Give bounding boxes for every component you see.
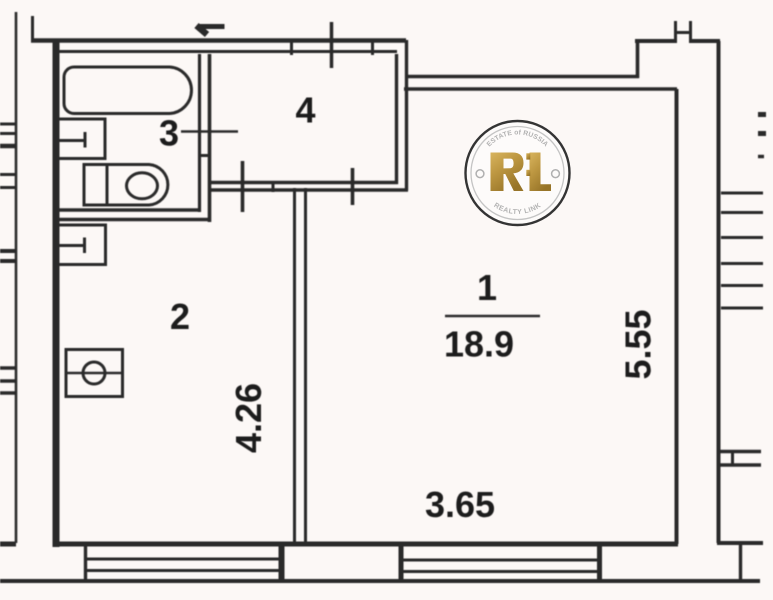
svg-text:3: 3 bbox=[159, 113, 179, 154]
svg-text:2: 2 bbox=[170, 296, 190, 337]
svg-text:5.55: 5.55 bbox=[618, 309, 659, 379]
svg-text:4: 4 bbox=[295, 90, 315, 131]
svg-text:3.65: 3.65 bbox=[425, 484, 495, 525]
svg-text:4.26: 4.26 bbox=[228, 383, 269, 453]
svg-text:18.9: 18.9 bbox=[444, 324, 514, 365]
svg-text:1: 1 bbox=[477, 267, 497, 308]
